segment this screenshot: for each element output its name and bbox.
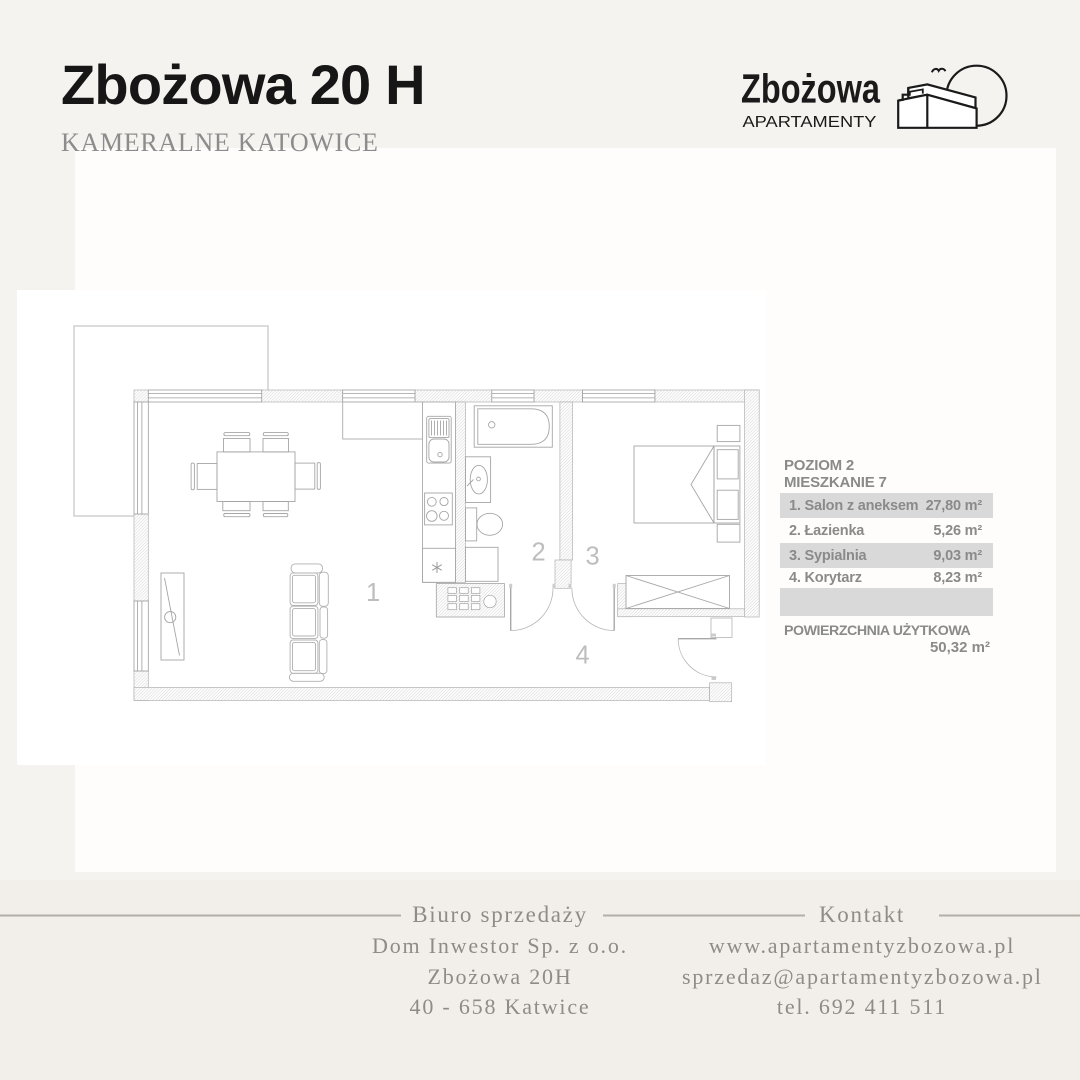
svg-text:2: 2: [532, 539, 546, 567]
svg-text:1: 1: [366, 579, 380, 607]
svg-text:APARTAMENTY: APARTAMENTY: [743, 114, 877, 131]
svg-text:Zbożowa: Zbożowa: [741, 66, 881, 112]
svg-text:4: 4: [576, 642, 590, 670]
svg-text:3: 3: [586, 543, 600, 571]
